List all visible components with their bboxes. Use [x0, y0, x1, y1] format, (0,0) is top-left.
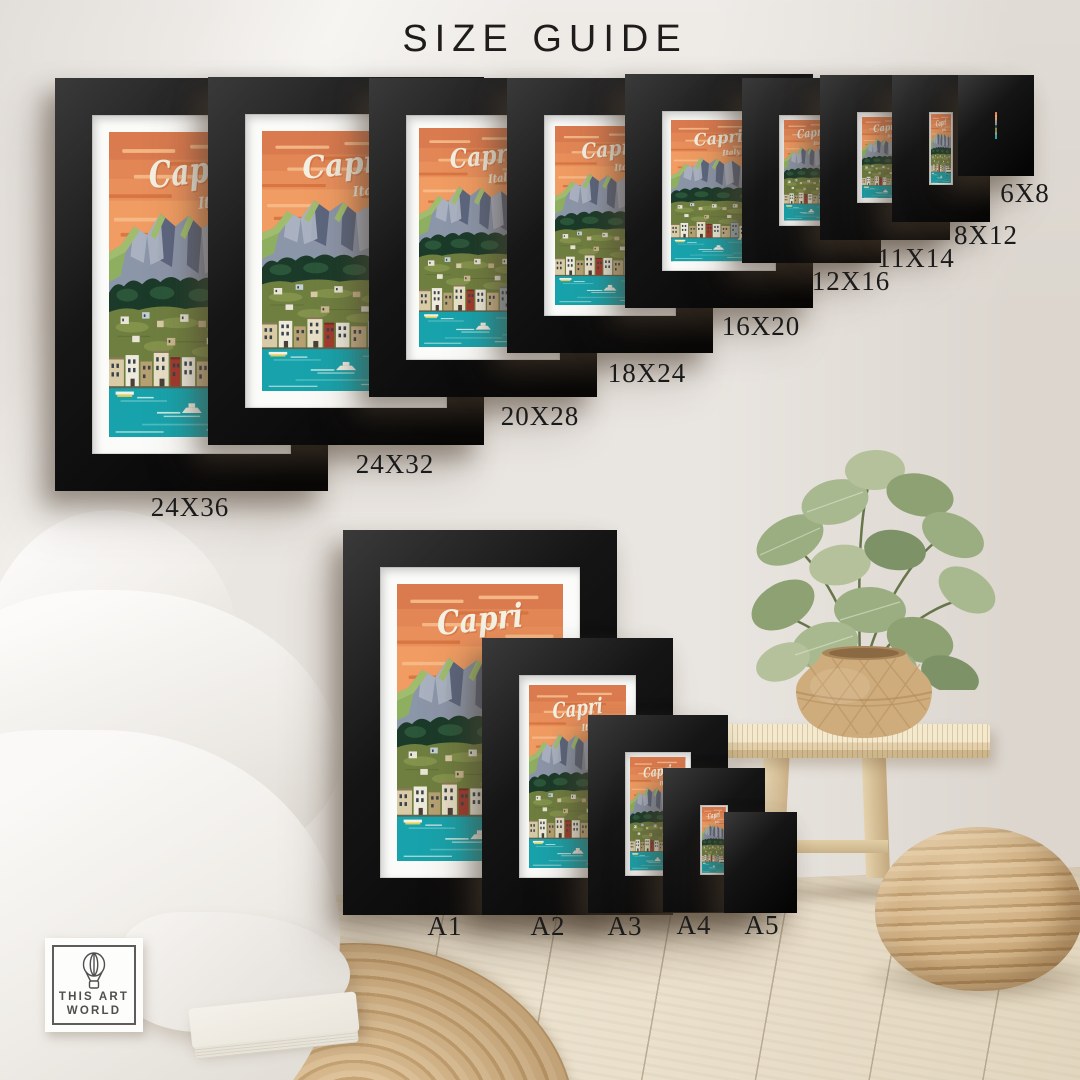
size-label-18x24: 18X24 [608, 358, 687, 389]
logo-border: THIS ART WORLD [52, 945, 136, 1025]
poster-frame-a5: Capri Capri Italy [724, 812, 797, 913]
size-label-a2: A2 [531, 911, 566, 942]
size-label-20x28: 20X28 [501, 401, 580, 432]
size-guide-image: SIZE GUIDE Capri Capri Italy [0, 0, 1080, 1080]
poster-subtitle: Italy [714, 819, 720, 825]
logo-text-line1: THIS ART [59, 990, 129, 1004]
size-label-24x36: 24X36 [151, 492, 230, 523]
size-label-a1: A1 [428, 911, 463, 942]
size-label-a3: A3 [608, 911, 643, 942]
poster-subtitle: Italy [941, 126, 946, 132]
poster-subtitle: Italy [721, 147, 742, 158]
size-label-6x8: 6X8 [1000, 178, 1050, 209]
capri-poster-art: Capri Capri Italy [931, 114, 951, 183]
poster-title: Capri [995, 113, 996, 118]
poster-frame-6x8: Capri Capri Italy [958, 75, 1034, 176]
size-label-24x32: 24X32 [356, 449, 435, 480]
frames-layer: Capri Capri Italy [0, 0, 1080, 1080]
size-label-a5: A5 [745, 910, 780, 941]
frame-mat: Capri Capri Italy [995, 112, 998, 140]
size-label-16x20: 16X20 [722, 311, 801, 342]
size-label-8x12: 8X12 [954, 220, 1018, 251]
hot-air-balloon-icon [79, 952, 109, 990]
capri-poster-art: Capri Capri Italy [702, 807, 726, 873]
size-label-a4: A4 [677, 910, 712, 941]
capri-poster-art: Capri Capri Italy [995, 112, 997, 139]
brand-logo: THIS ART WORLD [45, 938, 143, 1032]
frame-mat: Capri Capri Italy [929, 112, 954, 186]
logo-text-line2: WORLD [67, 1004, 121, 1018]
size-label-11x14: 11X14 [877, 243, 955, 274]
